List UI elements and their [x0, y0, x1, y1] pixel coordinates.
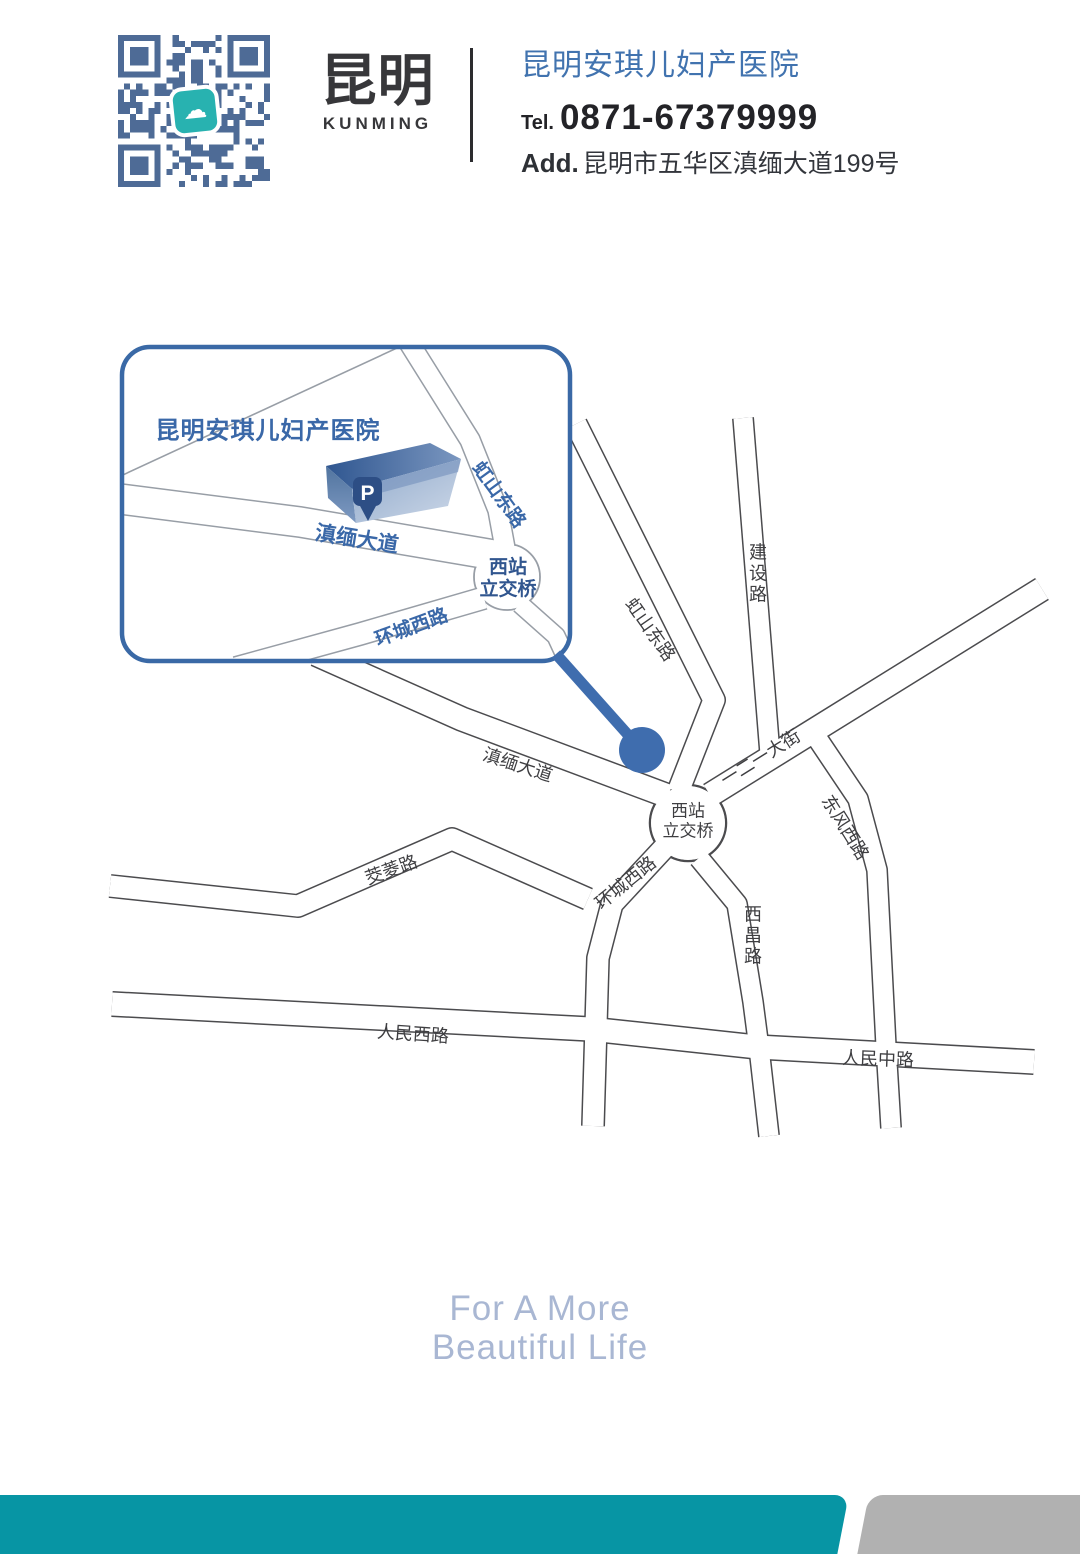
slogan-line2: Beautiful Life — [0, 1329, 1080, 1368]
parking-letter: P — [360, 482, 374, 505]
location-dot-icon — [619, 727, 665, 773]
label-xizhan-line2: 立交桥 — [663, 822, 714, 842]
label-xizhan-interchange: 西站 立交桥 — [663, 802, 714, 843]
footer-gray-bar — [855, 1495, 1080, 1554]
inset-hospital-title: 昆明安琪儿妇产医院 — [156, 411, 381, 446]
inset-label-xizhan-line1: 西站 — [479, 557, 536, 579]
slogan-line1: For A More — [0, 1290, 1080, 1329]
road-label-renmin-zhonglu: 人民中路 — [842, 1044, 915, 1072]
footer-teal-bar — [0, 1495, 849, 1554]
flyer-page: ☁ 昆明 KUNMING 昆明安琪儿妇产医院 Tel. 0871-6737999… — [0, 0, 1080, 1554]
slogan: For A More Beautiful Life — [0, 1290, 1080, 1367]
road-label-xichang-lu: 西昌路 — [739, 905, 765, 968]
inset-label-xizhan-line2: 立交桥 — [479, 579, 536, 601]
inset-label-xizhan-interchange: 西站 立交桥 — [479, 557, 536, 601]
footer-band — [0, 1495, 1080, 1554]
road-label-renmin-xilu: 人民西路 — [376, 1018, 450, 1049]
road-label-jianshe-lu: 建设路 — [744, 543, 770, 606]
label-xizhan-line1: 西站 — [663, 802, 714, 822]
